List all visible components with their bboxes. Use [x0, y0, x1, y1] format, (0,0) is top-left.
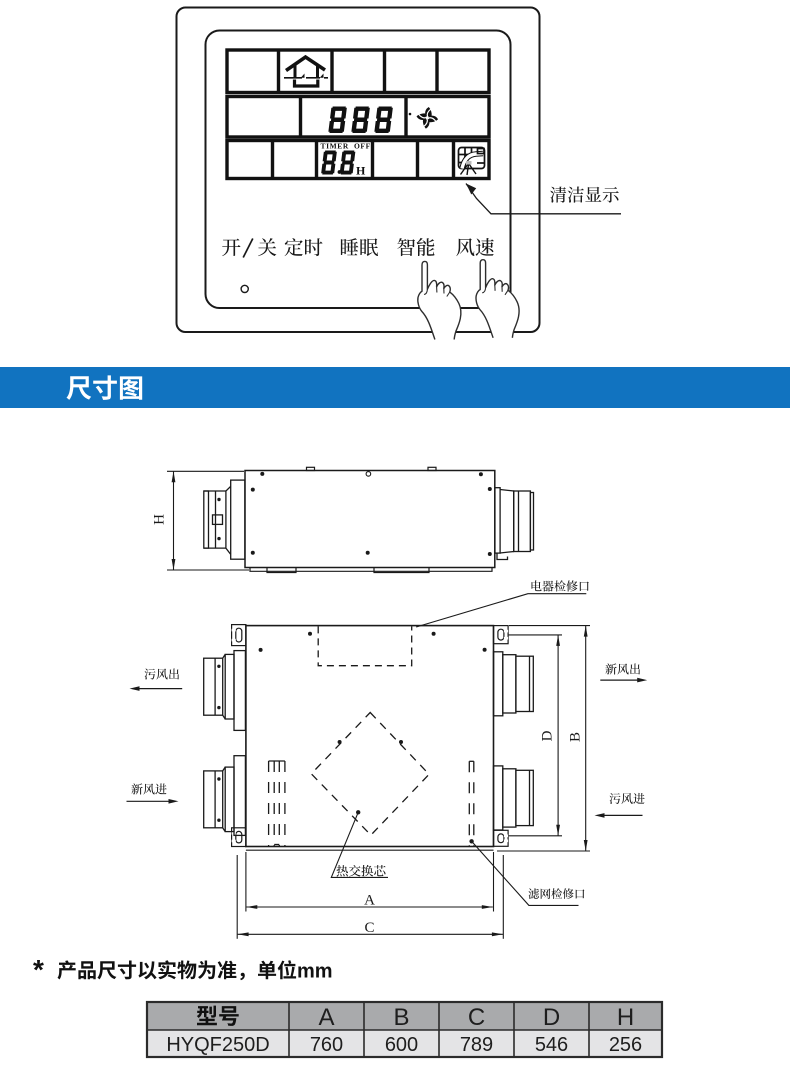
svg-text:C: C: [364, 920, 374, 936]
svg-text:D: D: [543, 1004, 560, 1031]
svg-text:HYQF250D: HYQF250D: [166, 1034, 269, 1056]
svg-text:H: H: [356, 164, 366, 178]
svg-text:C: C: [468, 1004, 485, 1031]
svg-text:TIMER: TIMER: [321, 142, 349, 151]
svg-text:D: D: [540, 730, 556, 741]
svg-text:B: B: [568, 732, 584, 742]
svg-text:789: 789: [460, 1034, 493, 1056]
svg-text:A: A: [364, 893, 375, 909]
svg-text:mm: mm: [297, 961, 333, 983]
svg-text:256: 256: [609, 1034, 642, 1056]
svg-text:OFF: OFF: [354, 142, 371, 151]
svg-text:A: A: [318, 1004, 334, 1031]
svg-text:H: H: [617, 1004, 634, 1031]
svg-text:600: 600: [385, 1034, 418, 1056]
svg-text:760: 760: [310, 1034, 343, 1056]
svg-text:*: *: [33, 954, 44, 985]
svg-text:B: B: [393, 1004, 409, 1031]
svg-text:H: H: [152, 514, 168, 525]
svg-text:546: 546: [535, 1034, 568, 1056]
